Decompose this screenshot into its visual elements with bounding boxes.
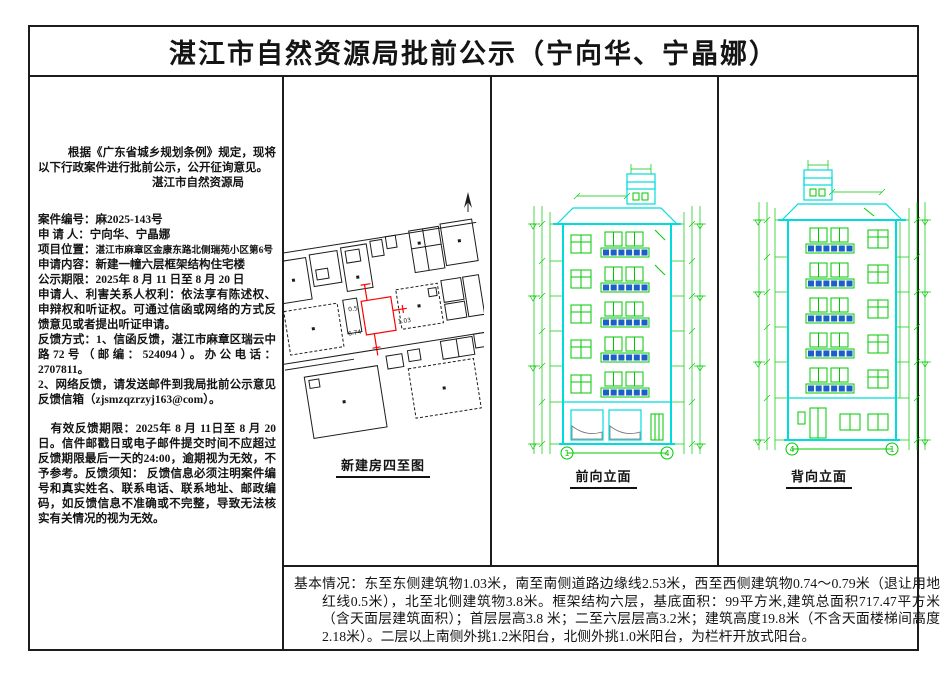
dim-south: 6.74 — [348, 329, 362, 338]
divider-above-basic-info — [282, 565, 919, 567]
back-elevation-drawing: 4 1 — [752, 158, 932, 458]
field-value: 宁向华、宁晶娜 — [90, 229, 171, 241]
axis-bubble-1: 1 — [889, 445, 894, 454]
notice-rights: 申请人、利害关系人权利：依法享有陈述权、申辩权和听证权。可通过信函或网络的方式反… — [38, 288, 276, 333]
roof — [557, 208, 677, 224]
site-plan-buildings: 0.5 6.74 1.03 — [284, 218, 484, 441]
field-case-number: 案件编号：麻2025-143号 — [38, 213, 276, 228]
divider-col-3 — [717, 75, 719, 565]
field-label: 案件编号： — [38, 214, 96, 226]
back-elevation-caption: 背向立面 — [717, 466, 921, 489]
notice-feedback-mail: 反馈方式：1、信函反馈，湛江市麻章区瑞云中路72号（邮编：524094）。办公电… — [38, 333, 276, 378]
site-plan-caption: 新建房四至图 — [283, 455, 483, 478]
dim-east: 1.03 — [397, 317, 411, 326]
ground-floor-openings — [798, 408, 888, 438]
axis-line: 4 1 — [786, 443, 898, 455]
roof — [782, 204, 902, 220]
page-title: 湛江市自然资源局批前公示（宁向华、宁晶娜） — [28, 32, 919, 71]
notice-intro: 根据《广东省城乡规划条例》规定，现将以下行政案件进行批前公示，公开征询意见。 — [38, 146, 276, 176]
dim-west: 0.5 — [348, 305, 359, 313]
field-location: 项目位置：湛江市麻章区金康东路北侧瑞苑小区第6号 — [38, 243, 276, 258]
notice-agency: 湛江市自然资源局 — [38, 176, 276, 191]
garage-doors — [571, 410, 641, 440]
notice-feedback-net: 2、网络反馈，请发送邮件到我局批前公示意见反馈信箱（zjsmzqzrzyj163… — [38, 378, 276, 408]
dimension-ticks — [528, 164, 706, 449]
roof-stair-enclosure — [804, 170, 832, 200]
divider-col-2 — [490, 75, 492, 565]
back-elevation-label: 背向立面 — [786, 466, 852, 489]
front-elevation-label: 前向立面 — [570, 466, 636, 489]
notice-deadline: 有效反馈期限：2025年 8 月 11日至 8 月 20 日。信件邮戳日或电子邮… — [38, 422, 276, 527]
dimension-ticks — [753, 160, 931, 445]
axis-line: 1 4 — [561, 447, 673, 459]
notice-fields: 案件编号：麻2025-143号 申 请 人：宁向华、宁晶娜 项目位置：湛江市麻章… — [38, 213, 276, 408]
north-arrow-icon — [464, 192, 472, 212]
field-label: 项目位置： — [38, 244, 96, 256]
field-applicant: 申 请 人：宁向华、宁晶娜 — [38, 228, 276, 243]
field-label: 申请内容： — [38, 259, 96, 271]
basic-info-text: 东至东侧建筑物1.03米，南至南侧道路边缘线2.53米，西至西侧建筑物0.74～… — [322, 576, 940, 644]
ground-door — [651, 414, 663, 440]
axis-bubble-4: 4 — [789, 445, 794, 454]
divider-under-title — [28, 75, 919, 77]
axis-bubble-4: 4 — [664, 449, 669, 458]
field-value: 新建一幢六层框架结构住宅楼 — [96, 259, 246, 271]
field-period: 公示期限：2025年 8 月 11 日至 8 月 20 日 — [38, 273, 276, 288]
field-value: 麻2025-143号 — [96, 214, 163, 226]
field-value: 湛江市麻章区金康东路北侧瑞苑小区第6号 — [96, 245, 273, 256]
field-label: 公示期限： — [38, 274, 96, 286]
basic-info-label: 基本情况： — [294, 576, 364, 591]
site-plan-drawing: 0.5 6.74 1.03 — [284, 188, 484, 450]
field-label: 申 请 人： — [38, 229, 90, 241]
field-value: 2025年 8 月 11 日至 8 月 20 日 — [96, 274, 245, 286]
site-plan-label: 新建房四至图 — [336, 455, 430, 478]
notice-text-panel: 根据《广东省城乡规划条例》规定，现将以下行政案件进行批前公示，公开征询意见。 湛… — [38, 146, 276, 527]
front-elevation-caption: 前向立面 — [490, 466, 717, 489]
field-content: 申请内容：新建一幢六层框架结构住宅楼 — [38, 258, 276, 273]
front-elevation-drawing: 1 4 — [527, 162, 707, 462]
basic-info: 基本情况：东至东侧建筑物1.03米，南至南侧道路边缘线2.53米，西至西侧建筑物… — [294, 575, 940, 645]
roof-stair-enclosure — [627, 174, 655, 204]
axis-bubble-1: 1 — [564, 449, 569, 458]
public-notice-page: 湛江市自然资源局批前公示（宁向华、宁晶娜） 根据《广东省城乡规划条例》规定，现将… — [0, 0, 949, 675]
